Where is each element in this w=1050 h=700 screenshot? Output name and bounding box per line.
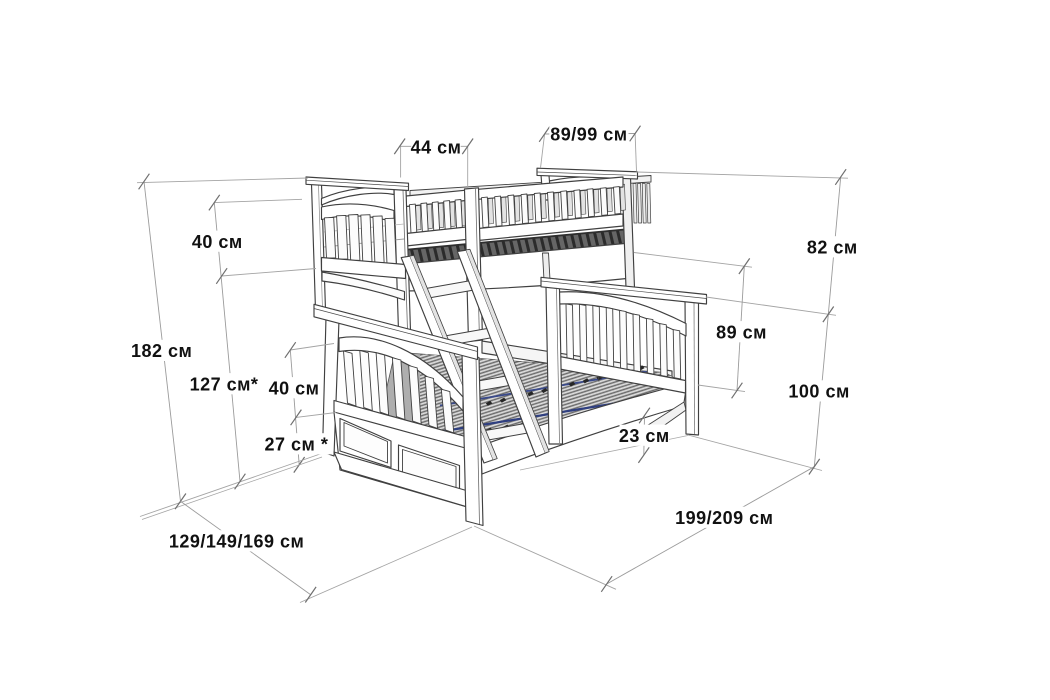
svg-text:89 см: 89 см [716,322,767,342]
svg-text:44 см: 44 см [411,137,462,157]
svg-text:82 см: 82 см [807,237,858,257]
svg-text:199/209 см: 199/209 см [675,508,773,528]
svg-text:23 см: 23 см [619,426,670,446]
svg-text:40 см: 40 см [269,378,320,398]
svg-text:100 см: 100 см [788,382,849,402]
svg-text:182 см: 182 см [131,341,192,361]
svg-text:40 см: 40 см [192,232,243,252]
svg-text:129/149/169 см: 129/149/169 см [169,531,304,551]
svg-text:89/99 см: 89/99 см [550,125,627,145]
svg-text:127 см*: 127 см* [190,374,259,394]
svg-text:27 см *: 27 см * [264,434,328,454]
